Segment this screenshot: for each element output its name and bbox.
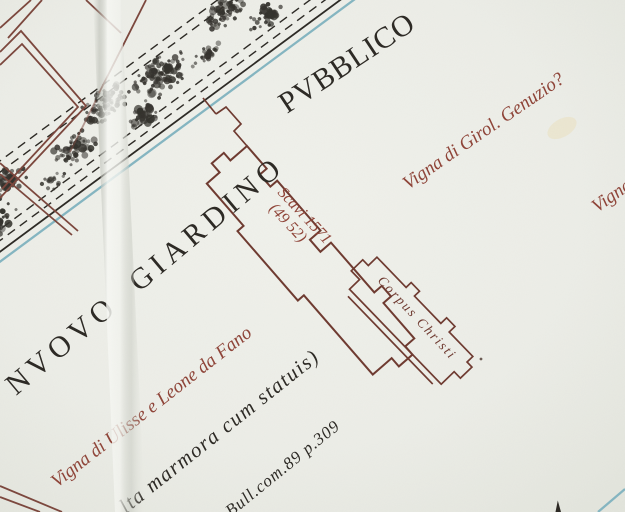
paper-grain — [0, 0, 625, 512]
map-canvas: NVOVO GIARDINO PVBBLICO Vigna di Girol. … — [0, 0, 625, 512]
scanned-map-page: NVOVO GIARDINO PVBBLICO Vigna di Girol. … — [0, 0, 625, 512]
